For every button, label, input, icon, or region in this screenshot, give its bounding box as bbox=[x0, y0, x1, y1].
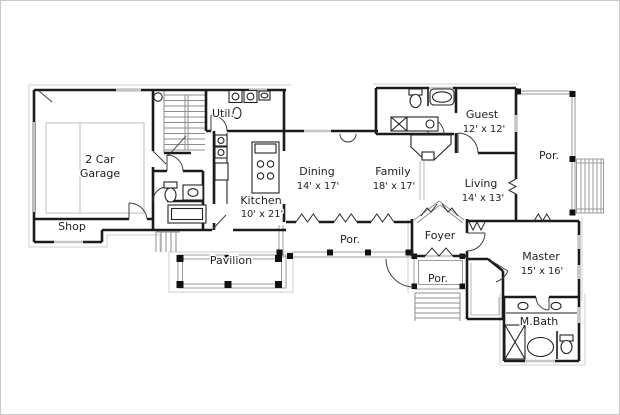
mbath-door bbox=[536, 297, 549, 310]
room-dims-dining: 14' x 17' bbox=[297, 181, 339, 192]
closet-shelving bbox=[471, 263, 499, 315]
room-label-family: Family bbox=[375, 165, 411, 178]
hall-bath-fixtures bbox=[164, 182, 203, 202]
room-label-mbath: M.Bath bbox=[520, 315, 559, 328]
right-porch-steps bbox=[577, 159, 604, 213]
master-bath-fixtures bbox=[505, 302, 577, 359]
tub bbox=[528, 338, 554, 357]
room-label-util: Util. bbox=[212, 107, 234, 120]
room-dims-kitchen: 10' x 21' bbox=[241, 209, 283, 220]
room-label-dining: Dining bbox=[299, 165, 335, 178]
room-label-guest: Guest bbox=[466, 108, 499, 121]
front-steps bbox=[415, 293, 460, 321]
room-label-living: Living bbox=[465, 177, 498, 190]
front-door-symbol bbox=[425, 248, 453, 256]
floor-plan-svg: 2 Car Garage Shop Util. Kitchen 10' x 21… bbox=[1, 1, 620, 415]
room-label-porch-center: Por. bbox=[340, 233, 360, 246]
room-label-garage-line2: Garage bbox=[80, 167, 121, 180]
room-label-pavilion: Pavilion bbox=[210, 254, 252, 267]
hall-bath-door bbox=[167, 155, 183, 171]
foyer-hall-door bbox=[467, 233, 485, 251]
interior-staircase bbox=[164, 90, 205, 156]
foyer-bay bbox=[414, 201, 464, 223]
kitchen-rear-door bbox=[212, 215, 226, 230]
guest-door bbox=[458, 133, 478, 153]
room-label-kitchen: Kitchen bbox=[240, 194, 281, 207]
room-label-porch-front: Por. bbox=[428, 272, 448, 285]
fireplace bbox=[411, 135, 451, 160]
dining-rear-door bbox=[340, 134, 356, 142]
room-label-garage-line1: 2 Car bbox=[85, 153, 115, 166]
room-label-porch-right: Por. bbox=[539, 149, 559, 162]
room-dims-family: 18' x 17' bbox=[373, 181, 415, 192]
floorplan-canvas: 2 Car Garage Shop Util. Kitchen 10' x 21… bbox=[0, 0, 620, 415]
room-label-master: Master bbox=[522, 250, 560, 263]
garage-side-door bbox=[39, 91, 52, 102]
gallery-lines bbox=[420, 161, 424, 200]
room-label-shop: Shop bbox=[58, 220, 86, 233]
room-dims-living: 14' x 13' bbox=[462, 193, 504, 204]
porch-gate-arc bbox=[386, 259, 414, 287]
mud-bench bbox=[168, 205, 206, 223]
room-dims-master: 15' x 16' bbox=[521, 266, 563, 277]
room-dims-guest: 12' x 12' bbox=[463, 124, 505, 135]
room-label-foyer: Foyer bbox=[425, 229, 456, 242]
guest-bath-fixtures bbox=[391, 89, 454, 131]
